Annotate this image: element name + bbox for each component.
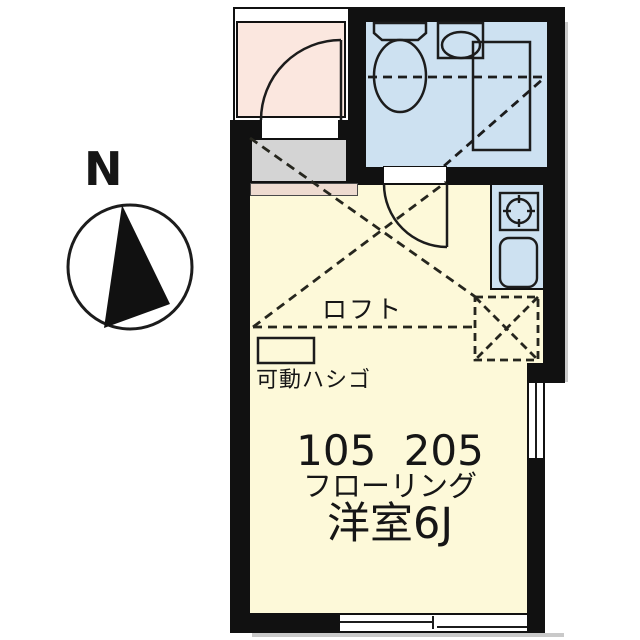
room-type-label: 洋室6J [240,501,540,548]
compass-rose [68,205,192,329]
floor-plan-canvas: N ロフト 可動ハシゴ 105 205 フローリング 洋室6J [0,0,640,640]
compass-north-label: N [84,144,123,195]
ladder-label: 可動ハシゴ [256,369,371,393]
bottom-window-sashes [340,616,527,629]
entrance-door-icon [261,40,341,120]
washbasin-icon [438,23,483,58]
kitchen-sink-icon [500,238,537,287]
loft-label: ロフト [240,296,485,324]
unit-numbers-label: 105 205 [240,428,540,474]
ladder-icon [258,338,314,363]
toilet-icon [374,23,426,112]
stove-icon [500,193,538,230]
room-door-icon [384,184,447,247]
